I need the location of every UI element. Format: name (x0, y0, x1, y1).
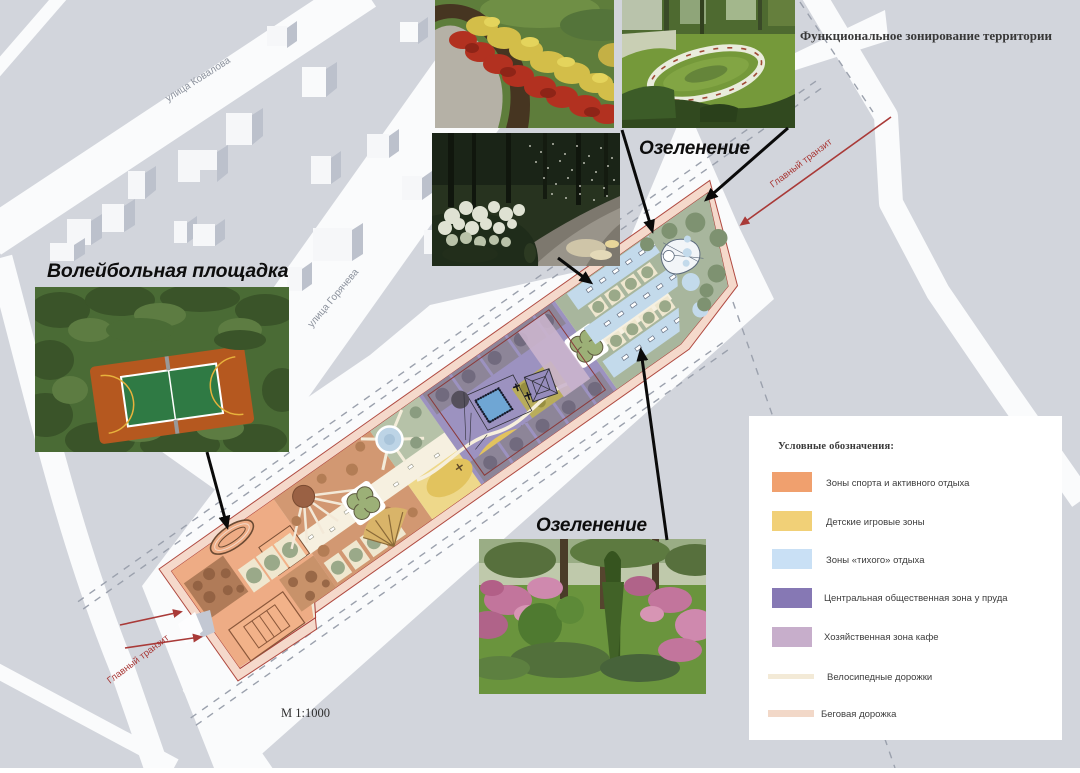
svg-text:Волейбольная площадка: Волейбольная площадка (47, 260, 289, 282)
svg-text:М 1:1000: М 1:1000 (281, 706, 330, 720)
svg-text:Детские игровые зоны: Детские игровые зоны (826, 517, 925, 528)
svg-text:Зоны спорта и активного отдыха: Зоны спорта и активного отдыха (826, 478, 970, 489)
svg-text:Беговая дорожка: Беговая дорожка (821, 709, 897, 720)
svg-text:Центральная общественная зона: Центральная общественная зона у пруда (824, 593, 1008, 604)
svg-text:Озеленение: Озеленение (536, 515, 647, 536)
svg-text:Велосипедные дорожки: Велосипедные дорожки (827, 672, 932, 683)
svg-text:Озеленение: Озеленение (639, 138, 750, 159)
svg-text:Хозяйственная зона кафе: Хозяйственная зона кафе (824, 632, 939, 643)
svg-text:Функциональное зонирование тер: Функциональное зонирование территории (800, 28, 1053, 43)
svg-text:Условные обозначения:: Условные обозначения: (778, 441, 894, 452)
svg-text:Зоны «тихого» отдыха: Зоны «тихого» отдыха (826, 555, 925, 566)
